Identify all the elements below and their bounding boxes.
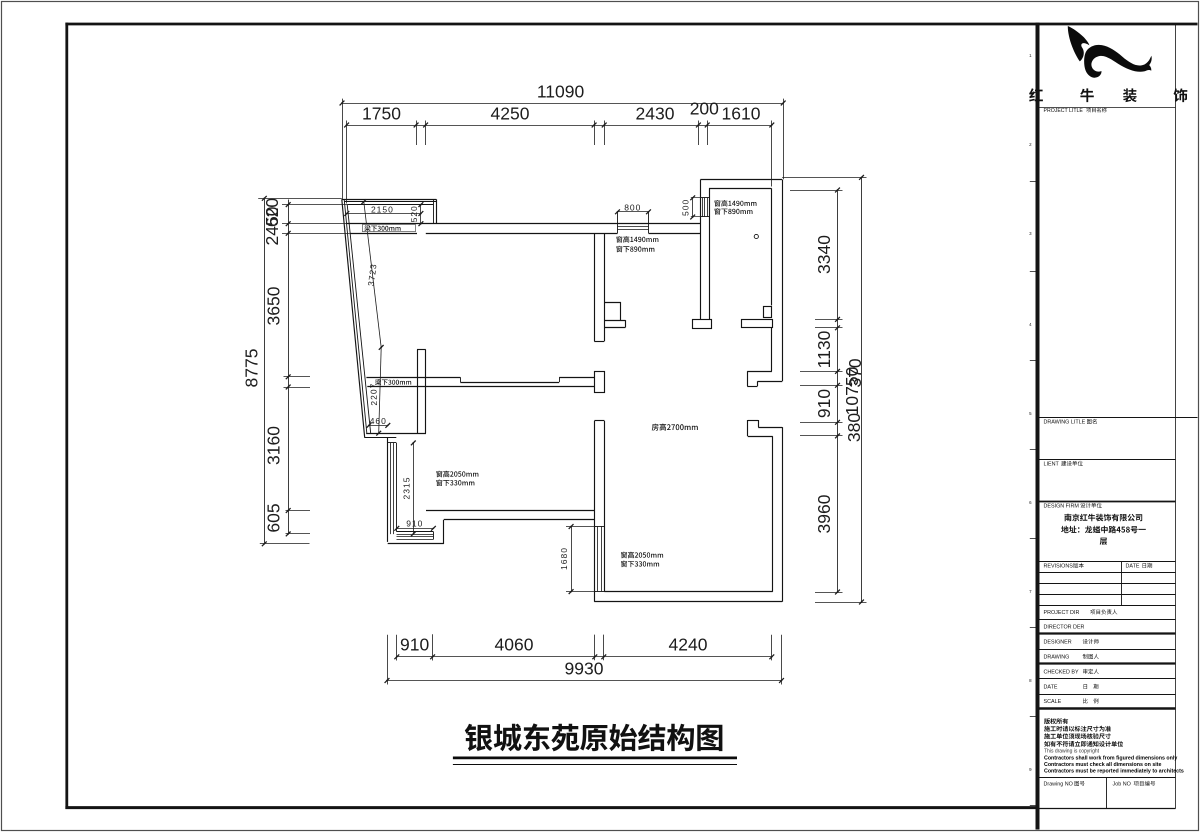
svg-text:DRAWING: DRAWING bbox=[1044, 655, 1070, 661]
svg-text:9930: 9930 bbox=[565, 659, 604, 679]
svg-text:4240: 4240 bbox=[669, 635, 708, 655]
svg-text:CHECKED BY: CHECKED BY bbox=[1044, 670, 1079, 676]
svg-text:460: 460 bbox=[370, 416, 387, 426]
svg-text:10750: 10750 bbox=[842, 366, 862, 415]
svg-text:800: 800 bbox=[624, 203, 641, 213]
svg-text:REVISIONS: REVISIONS bbox=[1044, 564, 1074, 570]
svg-text:4060: 4060 bbox=[495, 635, 534, 655]
svg-text:11090: 11090 bbox=[537, 82, 585, 102]
svg-text:3960: 3960 bbox=[814, 494, 834, 533]
svg-text:DRAWING LITLE: DRAWING LITLE bbox=[1044, 420, 1086, 426]
svg-text:2315: 2315 bbox=[401, 477, 411, 500]
svg-text:520: 520 bbox=[409, 205, 419, 222]
svg-text:DIRECTOR DER: DIRECTOR DER bbox=[1044, 625, 1085, 631]
svg-text:2430: 2430 bbox=[636, 104, 675, 124]
svg-text:Contractors must check all dim: Contractors must check all dimensions on… bbox=[1044, 762, 1161, 768]
svg-text:Contractors shall work from fi: Contractors shall work from figured dime… bbox=[1044, 756, 1177, 762]
svg-text:This drawing is copyright: This drawing is copyright bbox=[1044, 749, 1100, 755]
svg-text:SCALE: SCALE bbox=[1044, 699, 1062, 705]
svg-text:Job NO: Job NO bbox=[1113, 782, 1131, 788]
svg-text:3340: 3340 bbox=[814, 235, 834, 274]
svg-text:500: 500 bbox=[681, 199, 691, 216]
svg-text:PROJECT LITLE: PROJECT LITLE bbox=[1044, 108, 1084, 114]
svg-text:1680: 1680 bbox=[559, 547, 569, 570]
svg-text:3160: 3160 bbox=[264, 426, 284, 465]
svg-text:3650: 3650 bbox=[264, 286, 284, 325]
svg-text:LIENT: LIENT bbox=[1044, 462, 1060, 468]
svg-text:200: 200 bbox=[690, 99, 719, 119]
svg-text:2207: 2207 bbox=[368, 382, 379, 405]
svg-text:2150: 2150 bbox=[371, 205, 394, 215]
svg-text:380: 380 bbox=[844, 413, 864, 442]
svg-text:1750: 1750 bbox=[362, 104, 401, 124]
svg-text:2450: 2450 bbox=[262, 206, 282, 245]
svg-text:DATE: DATE bbox=[1044, 685, 1058, 691]
svg-text:1130: 1130 bbox=[814, 330, 834, 368]
svg-text:PROJECT DIR: PROJECT DIR bbox=[1044, 610, 1080, 616]
svg-text:605: 605 bbox=[264, 503, 284, 532]
svg-text:910: 910 bbox=[814, 389, 834, 418]
svg-text:DATE: DATE bbox=[1126, 564, 1140, 570]
svg-text:Contractors must be reported i: Contractors must be reported immediately… bbox=[1044, 769, 1184, 775]
svg-text:910: 910 bbox=[406, 519, 423, 529]
svg-text:8775: 8775 bbox=[242, 349, 262, 388]
svg-text:4250: 4250 bbox=[491, 104, 530, 124]
svg-text:Drawing NO: Drawing NO bbox=[1044, 782, 1073, 788]
svg-text:910: 910 bbox=[400, 635, 429, 655]
svg-text:DESIGN FIRM: DESIGN FIRM bbox=[1044, 504, 1080, 510]
svg-text:DESIGNER: DESIGNER bbox=[1044, 640, 1072, 646]
svg-text:1610: 1610 bbox=[722, 104, 761, 124]
